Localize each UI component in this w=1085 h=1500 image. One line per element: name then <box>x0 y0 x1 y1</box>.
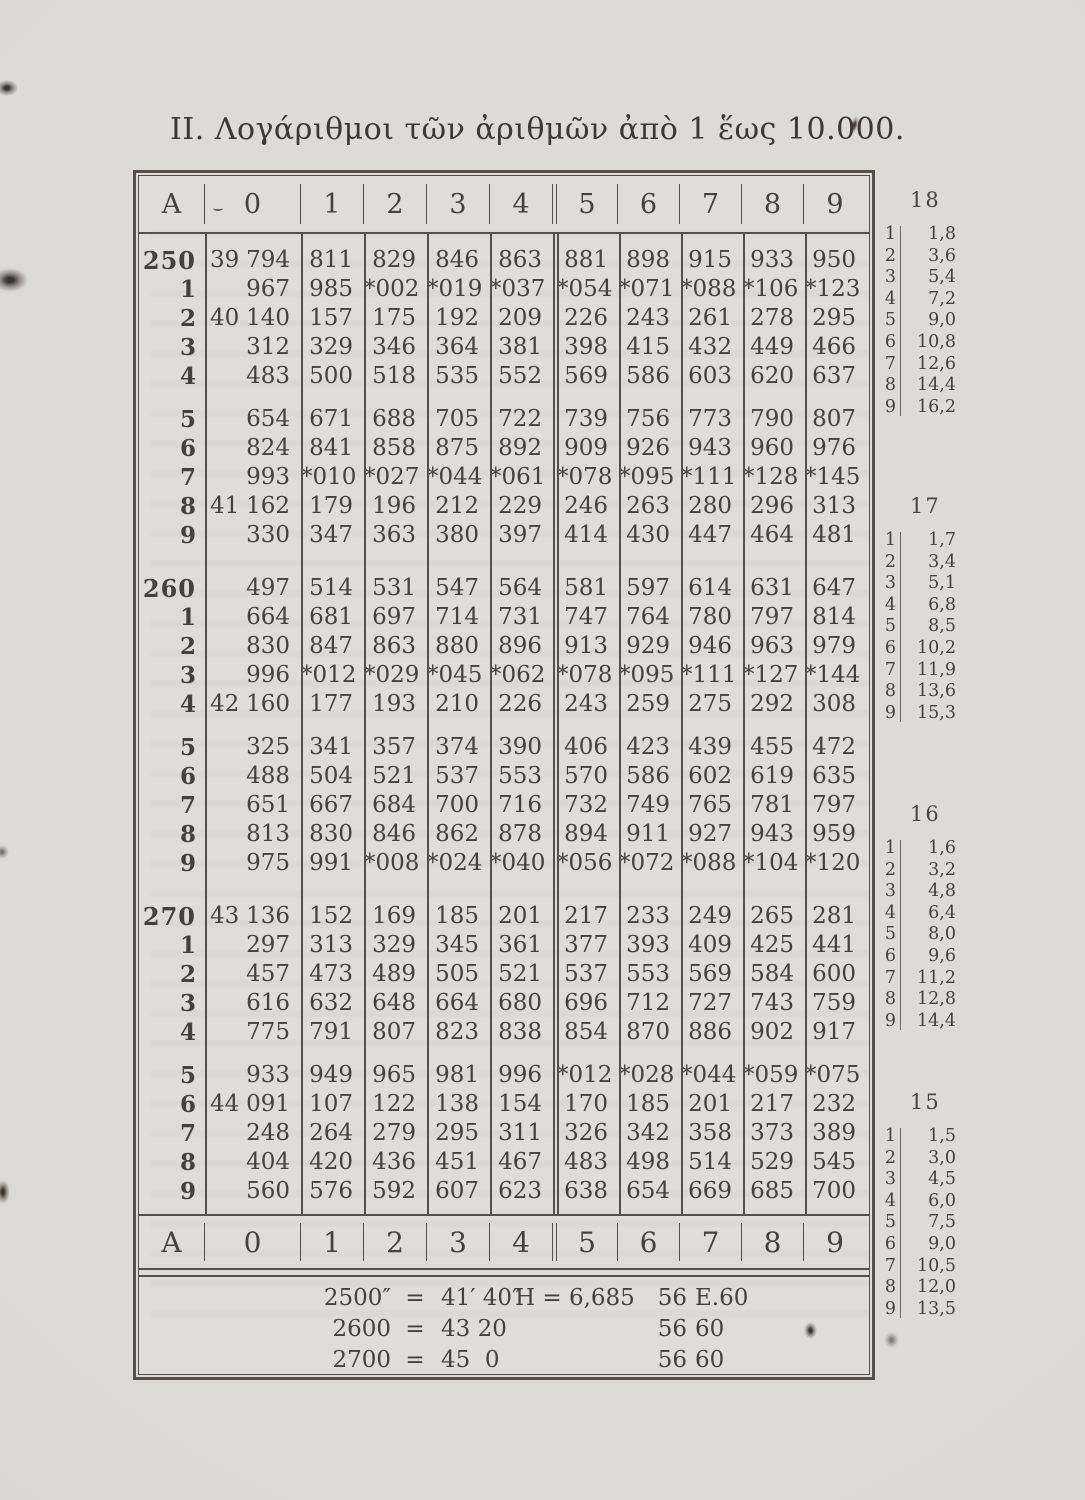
pp-value: 14,4 <box>896 1011 956 1033</box>
pp-value: 7,2 <box>896 289 956 311</box>
log-value-cell: 680 <box>490 989 553 1018</box>
log-value-cell: *120 <box>805 849 867 878</box>
log-table-frame: A0123456789 2503979481182984686388189891… <box>133 170 875 1380</box>
log-value-cell: 651 <box>205 791 301 820</box>
column-rule <box>681 234 683 1214</box>
log-value-cell: 965 <box>364 1061 427 1090</box>
log-value-cell: *019 <box>427 275 490 304</box>
column-header-label: 3 <box>449 1226 467 1259</box>
log-value-cell: 498 <box>619 1148 681 1177</box>
log-value-cell: 264 <box>301 1119 364 1148</box>
log-value-cell: 373 <box>743 1119 805 1148</box>
log-value-cell: 913 <box>557 632 619 661</box>
log-value-cell: 170 <box>557 1090 619 1119</box>
log-value-cell: 996 <box>490 1061 553 1090</box>
log-value: 248 <box>246 1120 290 1146</box>
table-row: 442160177193210226243259275292308 <box>139 690 869 719</box>
column-header-label: 0 <box>244 1226 262 1259</box>
pp-value: 9,0 <box>896 310 956 332</box>
log-value-cell: 781 <box>743 791 805 820</box>
log-value-cell: 791 <box>301 1018 364 1047</box>
row-label: 6 <box>139 1090 205 1119</box>
column-rule <box>427 234 429 1214</box>
log-value-cell: 603 <box>681 362 743 391</box>
row-label: 8 <box>139 820 205 849</box>
log-value-cell: 797 <box>805 791 867 820</box>
equals-sign: = <box>395 1283 433 1313</box>
column-header-1: 1 <box>301 184 364 224</box>
log-value-cell: *040 <box>490 849 553 878</box>
log-value-cell: 313 <box>301 931 364 960</box>
pp-value: 10,2 <box>896 638 956 660</box>
log-value-cell: 654 <box>619 1177 681 1206</box>
pp-value: 9,6 <box>896 946 956 968</box>
log-value-cell: 664 <box>205 603 301 632</box>
log-value: 654 <box>246 406 290 432</box>
log-value-cell: 553 <box>490 762 553 791</box>
log-value-cell: *029 <box>364 661 427 690</box>
log-value-cell: 700 <box>427 791 490 820</box>
log-value-cell: 483 <box>205 362 301 391</box>
pp-row: 34,5 <box>876 1169 980 1191</box>
column-header-0: 0 <box>205 184 301 224</box>
log-value-cell: *095 <box>619 463 681 492</box>
log-value-cell: 42160 <box>205 690 301 719</box>
pp-row: 11,8 <box>876 224 980 246</box>
row-label: 8 <box>139 1148 205 1177</box>
log-value-cell: 909 <box>557 434 619 463</box>
log-value-cell: *024 <box>427 849 490 878</box>
log-value-cell: 700 <box>805 1177 867 1206</box>
row-label: 7 <box>139 791 205 820</box>
log-value-cell: 564 <box>490 574 553 603</box>
table-row: 1664681697714731747764780797814 <box>139 603 869 632</box>
proportional-parts-table: 1611,623,234,846,458,069,6711,2812,8914,… <box>876 802 980 1032</box>
log-value-cell: 824 <box>205 434 301 463</box>
decade-prefix: 40 <box>210 304 239 333</box>
log-value-cell: *123 <box>805 275 867 304</box>
log-value-cell: 959 <box>805 820 867 849</box>
log-value-cell: *008 <box>364 849 427 878</box>
log-value-cell: *128 <box>743 463 805 492</box>
row-label: 5 <box>139 1061 205 1090</box>
log-value-cell: 927 <box>681 820 743 849</box>
log-value-cell: *044 <box>427 463 490 492</box>
log-value-cell: 963 <box>743 632 805 661</box>
difference-header: 18 <box>876 188 980 218</box>
column-rule <box>557 234 559 1214</box>
table-row: 2457473489505521537553569584600 <box>139 960 869 989</box>
log-value: 140 <box>246 305 290 331</box>
log-value: 091 <box>246 1091 290 1117</box>
log-value-cell: 811 <box>301 246 364 275</box>
row-block: 2704313615216918520121723324926528112973… <box>139 902 869 1206</box>
log-value-cell: 648 <box>364 989 427 1018</box>
table-row: 240140157175192209226243261278295 <box>139 304 869 333</box>
log-value-cell: 361 <box>490 931 553 960</box>
pp-digit: 6 <box>876 946 896 968</box>
log-value-cell: 775 <box>205 1018 301 1047</box>
table-row: 5933949965981996*012*028*044*059*075 <box>139 1061 869 1090</box>
row-label: 3 <box>139 661 205 690</box>
log-value-cell: 797 <box>743 603 805 632</box>
log-value-cell: 681 <box>301 603 364 632</box>
log-value-cell: 697 <box>364 603 427 632</box>
log-value-cell: 696 <box>557 989 619 1018</box>
note-row: 2500″=41′ 40″H = 6,68556E.60 <box>139 1283 869 1313</box>
log-value-cell: *002 <box>364 275 427 304</box>
log-value-cell: 374 <box>427 733 490 762</box>
pp-value: 6,8 <box>896 595 956 617</box>
pp-digit: 7 <box>876 354 896 376</box>
difference-header: 16 <box>876 802 980 832</box>
log-value-cell: 505 <box>427 960 490 989</box>
log-value: 297 <box>246 932 290 958</box>
pp-value: 3,2 <box>896 860 956 882</box>
equals-sign: = <box>395 1345 433 1375</box>
pp-value: 10,8 <box>896 332 956 354</box>
pp-row: 813,6 <box>876 681 980 703</box>
log-value-cell: 714 <box>427 603 490 632</box>
log-value: 975 <box>246 850 290 876</box>
log-value-cell: 259 <box>619 690 681 719</box>
pp-row: 610,8 <box>876 332 980 354</box>
column-header-label: 6 <box>640 189 657 220</box>
row-label: 9 <box>139 849 205 878</box>
log-value-cell: *027 <box>364 463 427 492</box>
log-value-cell: *078 <box>557 463 619 492</box>
table-row: 6824841858875892909926943960976 <box>139 434 869 463</box>
pp-rows: 11,623,234,846,458,069,6711,2812,8914,4 <box>876 838 980 1032</box>
pp-row: 34,8 <box>876 881 980 903</box>
pp-digit: 6 <box>876 638 896 660</box>
log-value-cell: *059 <box>743 1061 805 1090</box>
log-value-cell: 790 <box>743 405 805 434</box>
log-value-cell: *111 <box>681 463 743 492</box>
log-value-cell: 436 <box>364 1148 427 1177</box>
log-value-cell: 727 <box>681 989 743 1018</box>
column-header-1: 1 <box>301 1223 364 1260</box>
pp-rows: 11,823,635,447,259,0610,8712,6814,4916,2 <box>876 224 980 418</box>
column-header-5: 5 <box>556 184 618 224</box>
pp-row: 814,4 <box>876 375 980 397</box>
log-value-cell: 330 <box>205 521 301 550</box>
pp-value: 11,2 <box>896 968 956 990</box>
table-row: 644091107122138154170185201217232 <box>139 1090 869 1119</box>
log-value-cell: 780 <box>681 603 743 632</box>
pp-row: 47,2 <box>876 289 980 311</box>
log-value-cell: 457 <box>205 960 301 989</box>
log-value-cell: 500 <box>301 362 364 391</box>
pp-digit: 9 <box>876 1011 896 1033</box>
log-value-cell: *104 <box>743 849 805 878</box>
log-value-cell: *078 <box>557 661 619 690</box>
log-value-cell: 473 <box>301 960 364 989</box>
log-value-cell: *044 <box>681 1061 743 1090</box>
table-row: 8813830846862878894911927943959 <box>139 820 869 849</box>
table-row: 8404420436451467483498514529545 <box>139 1148 869 1177</box>
log-value: 136 <box>246 903 290 929</box>
log-value: 483 <box>246 363 290 389</box>
log-value-cell: *075 <box>805 1061 867 1090</box>
table-row: 25039794811829846863881898915933950 <box>139 246 869 275</box>
log-value-cell: 764 <box>619 603 681 632</box>
decade-prefix: 39 <box>210 246 239 275</box>
column-header-3: 3 <box>427 1223 490 1260</box>
log-value-cell: 846 <box>427 246 490 275</box>
column-header-5: 5 <box>556 1223 618 1260</box>
conversion-value: 2700 <box>287 1345 391 1375</box>
log-value: 794 <box>246 247 290 273</box>
pp-digit: 5 <box>876 1212 896 1234</box>
log-value-cell: 420 <box>301 1148 364 1177</box>
row-label: 6 <box>139 434 205 463</box>
log-value: 933 <box>246 1062 290 1088</box>
log-value-cell: 993 <box>205 463 301 492</box>
log-value-cell: 154 <box>490 1090 553 1119</box>
log-value-cell: 592 <box>364 1177 427 1206</box>
row-label: 4 <box>139 1018 205 1047</box>
log-value-cell: 243 <box>557 690 619 719</box>
pp-row: 46,0 <box>876 1191 980 1213</box>
column-header-8: 8 <box>742 184 804 224</box>
log-value-cell: 967 <box>205 275 301 304</box>
log-value-cell: 664 <box>427 989 490 1018</box>
log-value-cell: 406 <box>557 733 619 762</box>
table-row: 3616632648664680696712727743759 <box>139 989 869 1018</box>
log-value-cell: 620 <box>743 362 805 391</box>
table-row: 5325341357374390406423439455472 <box>139 733 869 762</box>
log-value-cell: 545 <box>805 1148 867 1177</box>
log-value-cell: 514 <box>681 1148 743 1177</box>
pp-digit: 4 <box>876 595 896 617</box>
log-value-cell: 841 <box>301 434 364 463</box>
log-value-cell: 996 <box>205 661 301 690</box>
log-value-cell: 529 <box>743 1148 805 1177</box>
log-value-cell: 40140 <box>205 304 301 333</box>
log-value-cell: 364 <box>427 333 490 362</box>
log-value-cell: 312 <box>205 333 301 362</box>
log-value-cell: 616 <box>205 989 301 1018</box>
log-value-cell: 846 <box>364 820 427 849</box>
log-value-cell: 569 <box>557 362 619 391</box>
column-header-6: 6 <box>618 1223 680 1260</box>
pp-digit: 7 <box>876 968 896 990</box>
table-row: 841162179196212229246263280296313 <box>139 492 869 521</box>
log-value-cell: 943 <box>743 820 805 849</box>
log-value-cell: 243 <box>619 304 681 333</box>
log-value-cell: *088 <box>681 849 743 878</box>
column-header-label: 8 <box>764 189 781 220</box>
pp-row: 812,8 <box>876 989 980 1011</box>
pp-digit: 9 <box>876 1299 896 1321</box>
log-value-cell: 185 <box>619 1090 681 1119</box>
log-value-cell: 685 <box>743 1177 805 1206</box>
log-value-cell: 280 <box>681 492 743 521</box>
row-label: 7 <box>139 1119 205 1148</box>
log-value-cell: 705 <box>427 405 490 434</box>
row-label: 250 <box>139 246 205 275</box>
log-value-cell: 363 <box>364 521 427 550</box>
pp-value: 11,9 <box>896 660 956 682</box>
log-value-cell: 217 <box>557 902 619 931</box>
log-value-cell: 212 <box>427 492 490 521</box>
column-header-2: 2 <box>364 184 427 224</box>
column-header-label: 1 <box>323 189 340 220</box>
table-row: 9560576592607623638654669685700 <box>139 1177 869 1206</box>
log-value-cell: 275 <box>681 690 743 719</box>
log-value-cell: 278 <box>743 304 805 333</box>
log-value-cell: 830 <box>205 632 301 661</box>
log-value: 993 <box>246 464 290 490</box>
pp-digit: 7 <box>876 1256 896 1278</box>
log-value-cell: 521 <box>364 762 427 791</box>
log-value-cell: 43136 <box>205 902 301 931</box>
row-label: 2 <box>139 632 205 661</box>
pp-value: 6,0 <box>896 1191 956 1213</box>
double-rule-divider <box>139 1268 869 1277</box>
column-header-label: 1 <box>323 1226 341 1259</box>
log-value-cell: 946 <box>681 632 743 661</box>
log-value: 775 <box>246 1019 290 1045</box>
log-value-cell: 439 <box>681 733 743 762</box>
log-value: 813 <box>246 821 290 847</box>
log-value-cell: 489 <box>364 960 427 989</box>
log-value-cell: 981 <box>427 1061 490 1090</box>
pp-value: 14,4 <box>896 375 956 397</box>
pp-value: 7,5 <box>896 1212 956 1234</box>
log-value-cell: 669 <box>681 1177 743 1206</box>
log-value-cell: 712 <box>619 989 681 1018</box>
row-label: 260 <box>139 574 205 603</box>
log-value-cell: *095 <box>619 661 681 690</box>
log-value-cell: 196 <box>364 492 427 521</box>
pp-digit: 3 <box>876 881 896 903</box>
log-value-cell: 654 <box>205 405 301 434</box>
column-header-label: 2 <box>386 1226 404 1259</box>
log-value-cell: 521 <box>490 960 553 989</box>
pp-value: 5,4 <box>896 267 956 289</box>
decade-prefix: 43 <box>210 902 239 931</box>
table-row: 7993*010*027*044*061*078*095*111*128*145 <box>139 463 869 492</box>
log-value-cell: *010 <box>301 463 364 492</box>
log-value-cell: 393 <box>619 931 681 960</box>
log-value-cell: 377 <box>557 931 619 960</box>
pp-digit: 2 <box>876 552 896 574</box>
row-label: 1 <box>139 275 205 304</box>
log-value-cell: 976 <box>805 434 867 463</box>
log-value: 651 <box>246 792 290 818</box>
log-value: 830 <box>246 633 290 659</box>
decade-prefix: 41 <box>210 492 239 521</box>
log-value-cell: 466 <box>805 333 867 362</box>
log-value-cell: 390 <box>490 733 553 762</box>
pp-value: 4,8 <box>896 881 956 903</box>
log-value-cell: *012 <box>301 661 364 690</box>
pp-value: 4,5 <box>896 1169 956 1191</box>
log-value-cell: 619 <box>743 762 805 791</box>
difference-header: 17 <box>876 494 980 524</box>
row-label: 1 <box>139 603 205 632</box>
pp-value: 6,4 <box>896 903 956 925</box>
log-value-cell: 41162 <box>205 492 301 521</box>
log-value-cell: 201 <box>490 902 553 931</box>
pp-value: 15,3 <box>896 703 956 725</box>
log-value-cell: 892 <box>490 434 553 463</box>
log-value-cell: 739 <box>557 405 619 434</box>
log-value-cell: 600 <box>805 960 867 989</box>
log-value-cell: 345 <box>427 931 490 960</box>
log-value-cell: 209 <box>490 304 553 333</box>
log-value-cell: 357 <box>364 733 427 762</box>
log-value-cell: 464 <box>743 521 805 550</box>
log-value-cell: 398 <box>557 333 619 362</box>
log-value-cell: 635 <box>805 762 867 791</box>
column-header-9: 9 <box>804 1223 866 1260</box>
log-value-cell: 179 <box>301 492 364 521</box>
conversion-result: 45 0 <box>441 1345 571 1375</box>
log-value-cell: *144 <box>805 661 867 690</box>
table-row: 2830847863880896913929946963979 <box>139 632 869 661</box>
log-value-cell: 586 <box>619 762 681 791</box>
log-value-cell: 870 <box>619 1018 681 1047</box>
log-value-cell: 732 <box>557 791 619 820</box>
log-value-cell: 279 <box>364 1119 427 1148</box>
log-value-cell: 829 <box>364 246 427 275</box>
pp-digit: 9 <box>876 397 896 419</box>
column-header-9: 9 <box>804 184 866 224</box>
pp-value: 9,0 <box>896 1234 956 1256</box>
note-row: 2600=43 205660 <box>139 1314 869 1344</box>
log-value-cell: 607 <box>427 1177 490 1206</box>
log-value-cell: 233 <box>619 902 681 931</box>
pp-row: 915,3 <box>876 703 980 725</box>
pp-row: 710,5 <box>876 1256 980 1278</box>
log-value-cell: 623 <box>490 1177 553 1206</box>
pp-row: 46,8 <box>876 595 980 617</box>
pp-digit: 8 <box>876 681 896 703</box>
log-value-cell: 933 <box>205 1061 301 1090</box>
log-value-cell: 483 <box>557 1148 619 1177</box>
log-value-cell: 261 <box>681 304 743 333</box>
log-value-cell: 192 <box>427 304 490 333</box>
column-header-label: 8 <box>764 1226 782 1259</box>
log-value-cell: 862 <box>427 820 490 849</box>
log-value-cell: 347 <box>301 521 364 550</box>
log-value-cell: 296 <box>743 492 805 521</box>
log-value-cell: 358 <box>681 1119 743 1148</box>
log-value-cell: 584 <box>743 960 805 989</box>
log-value-cell: 430 <box>619 521 681 550</box>
column-header-0: 0 <box>205 1223 301 1260</box>
column-header-label: 7 <box>702 1226 720 1259</box>
log-value-cell: 177 <box>301 690 364 719</box>
pp-row: 58,0 <box>876 924 980 946</box>
log-value: 457 <box>246 961 290 987</box>
pp-row: 712,6 <box>876 354 980 376</box>
column-rule <box>205 234 207 1214</box>
log-value: 824 <box>246 435 290 461</box>
row-label: 5 <box>139 733 205 762</box>
pp-digit: 4 <box>876 903 896 925</box>
pp-row: 610,2 <box>876 638 980 660</box>
log-value-cell: 263 <box>619 492 681 521</box>
table-row: 6488504521537553570586602619635 <box>139 762 869 791</box>
column-header-7: 7 <box>680 184 742 224</box>
log-value-cell: 647 <box>805 574 867 603</box>
row-label: 3 <box>139 333 205 362</box>
log-value-cell: 950 <box>805 246 867 275</box>
